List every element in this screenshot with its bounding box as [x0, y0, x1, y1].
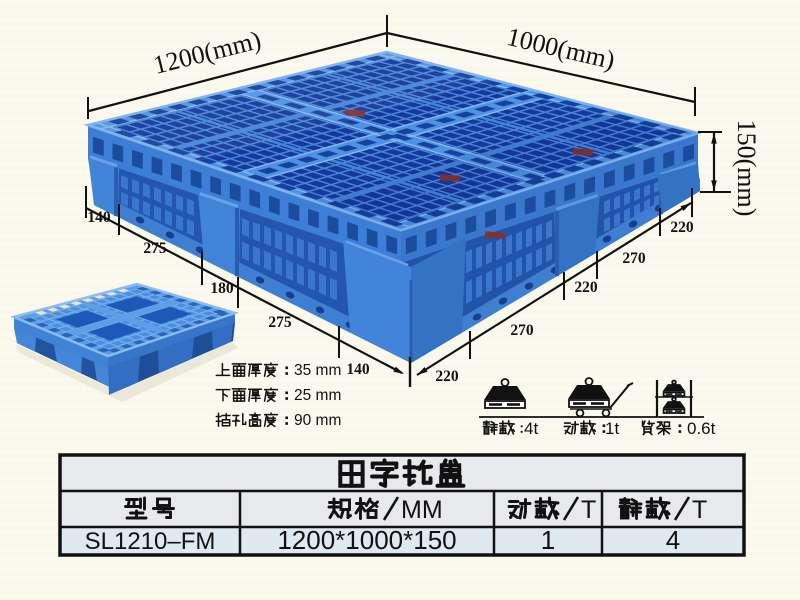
svg-text:4t: 4t	[524, 419, 538, 438]
svg-text:220: 220	[670, 219, 694, 236]
svg-text:25 mm: 25 mm	[294, 387, 341, 404]
svg-text:1200*1000*150: 1200*1000*150	[277, 525, 456, 555]
svg-text:0.6t: 0.6t	[687, 419, 716, 438]
svg-text:35 mm: 35 mm	[294, 362, 341, 379]
svg-text:SL1210–FM: SL1210–FM	[85, 528, 216, 555]
svg-text:270: 270	[622, 250, 646, 267]
svg-text:1: 1	[541, 525, 555, 555]
svg-text:150(mm): 150(mm)	[732, 120, 761, 217]
svg-text:140: 140	[346, 361, 370, 378]
svg-text:90 mm: 90 mm	[294, 412, 341, 429]
svg-text:180: 180	[210, 280, 234, 297]
svg-text:220: 220	[574, 279, 598, 296]
svg-text:275: 275	[143, 240, 167, 257]
svg-text:1t: 1t	[605, 419, 619, 438]
svg-text:275: 275	[268, 314, 292, 331]
svg-text:220: 220	[435, 368, 459, 385]
svg-text:MM: MM	[401, 496, 443, 524]
svg-text:4: 4	[666, 525, 680, 555]
svg-text:T: T	[581, 496, 596, 524]
svg-text:T: T	[692, 496, 707, 524]
svg-text:270: 270	[510, 322, 534, 339]
svg-text:140: 140	[87, 209, 111, 226]
